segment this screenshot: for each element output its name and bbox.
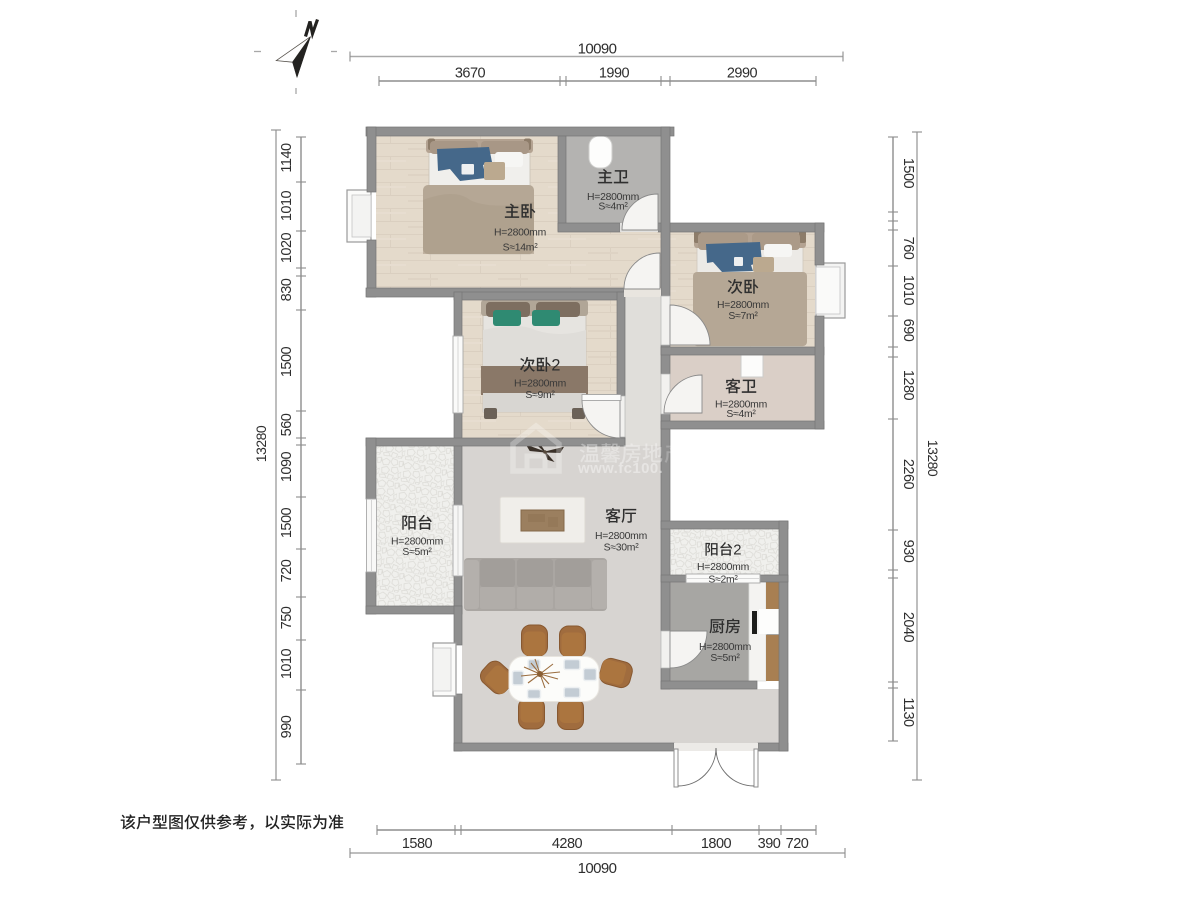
svg-text:13280: 13280 bbox=[925, 440, 941, 477]
svg-text:S≈5m²: S≈5m² bbox=[402, 547, 432, 558]
svg-text:H=2800mm: H=2800mm bbox=[699, 642, 751, 653]
svg-text:1090: 1090 bbox=[279, 451, 295, 482]
svg-text:1500: 1500 bbox=[279, 346, 295, 377]
svg-text:10090: 10090 bbox=[578, 41, 617, 58]
svg-text:13280: 13280 bbox=[253, 425, 269, 462]
svg-text:www.fc100.: www.fc100. bbox=[577, 460, 663, 477]
svg-text:1280: 1280 bbox=[900, 370, 916, 401]
svg-text:S≈7m²: S≈7m² bbox=[728, 311, 758, 322]
svg-text:830: 830 bbox=[279, 278, 295, 301]
svg-text:2040: 2040 bbox=[900, 612, 916, 643]
svg-text:1130: 1130 bbox=[900, 697, 916, 727]
svg-text:H=2800mm: H=2800mm bbox=[494, 228, 546, 239]
svg-text:2: 2 bbox=[733, 543, 741, 559]
svg-text:3670: 3670 bbox=[455, 66, 486, 82]
svg-text:2260: 2260 bbox=[900, 459, 916, 490]
svg-text:H=2800mm: H=2800mm bbox=[697, 562, 749, 573]
svg-text:4280: 4280 bbox=[552, 836, 583, 852]
svg-text:1500: 1500 bbox=[279, 507, 295, 538]
svg-text:690: 690 bbox=[900, 319, 916, 342]
svg-text:760: 760 bbox=[900, 237, 916, 260]
svg-text:H=2800mm: H=2800mm bbox=[514, 379, 566, 390]
svg-text:1990: 1990 bbox=[599, 66, 630, 82]
svg-text:1020: 1020 bbox=[279, 232, 295, 263]
svg-text:1580: 1580 bbox=[402, 836, 433, 852]
svg-text:S≈30m²: S≈30m² bbox=[604, 543, 640, 554]
svg-text:1140: 1140 bbox=[279, 143, 295, 173]
svg-text:560: 560 bbox=[279, 413, 295, 436]
svg-text:2: 2 bbox=[551, 357, 560, 375]
svg-text:750: 750 bbox=[279, 606, 295, 629]
svg-text:S≈9m²: S≈9m² bbox=[525, 390, 555, 401]
svg-text:990: 990 bbox=[279, 715, 295, 738]
svg-text:930: 930 bbox=[900, 540, 916, 563]
svg-text:H=2800mm: H=2800mm bbox=[595, 531, 647, 542]
svg-text:H=2800mm: H=2800mm bbox=[717, 300, 769, 311]
svg-text:S≈14m²: S≈14m² bbox=[503, 243, 539, 254]
svg-text:S≈5m²: S≈5m² bbox=[710, 653, 740, 664]
svg-text:1500: 1500 bbox=[900, 158, 916, 189]
svg-text:S≈2m²: S≈2m² bbox=[708, 575, 738, 586]
svg-text:1010: 1010 bbox=[279, 190, 295, 221]
svg-text:2990: 2990 bbox=[727, 66, 758, 82]
svg-text:390: 390 bbox=[758, 836, 781, 852]
svg-text:H=2800mm: H=2800mm bbox=[391, 537, 443, 548]
svg-text:1800: 1800 bbox=[701, 836, 732, 852]
svg-text:S≈4m²: S≈4m² bbox=[726, 409, 756, 420]
svg-text:S≈4m²: S≈4m² bbox=[598, 202, 628, 213]
svg-text:720: 720 bbox=[279, 559, 295, 582]
svg-text:1010: 1010 bbox=[900, 275, 916, 306]
svg-text:720: 720 bbox=[786, 836, 809, 852]
svg-text:10090: 10090 bbox=[578, 860, 617, 877]
svg-text:1010: 1010 bbox=[279, 648, 295, 679]
